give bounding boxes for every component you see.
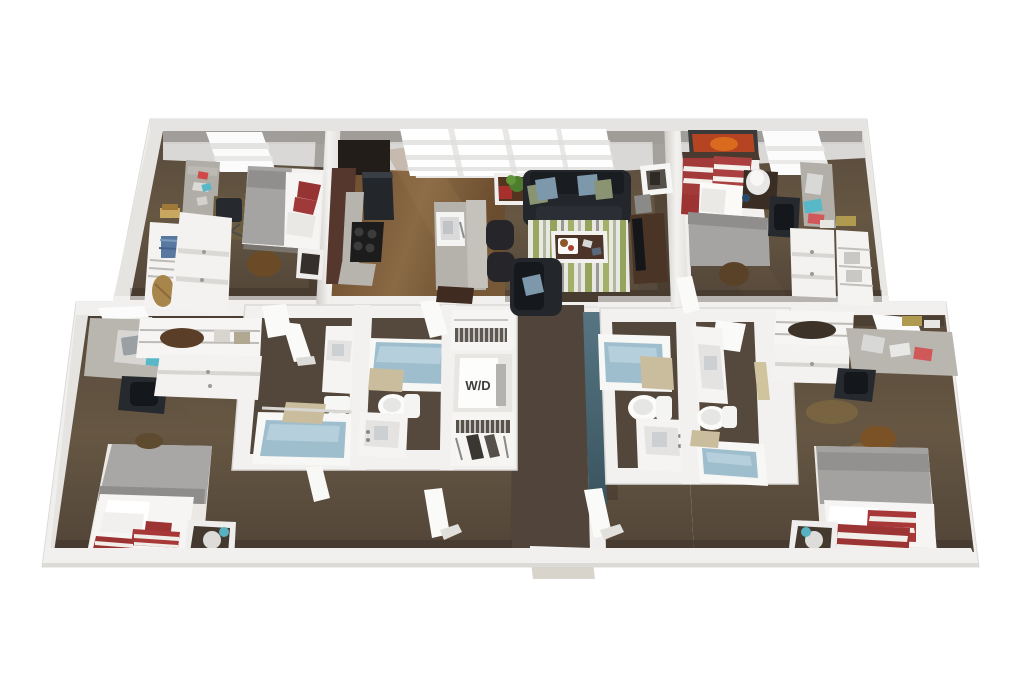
svg-text:W/D: W/D: [465, 378, 490, 393]
